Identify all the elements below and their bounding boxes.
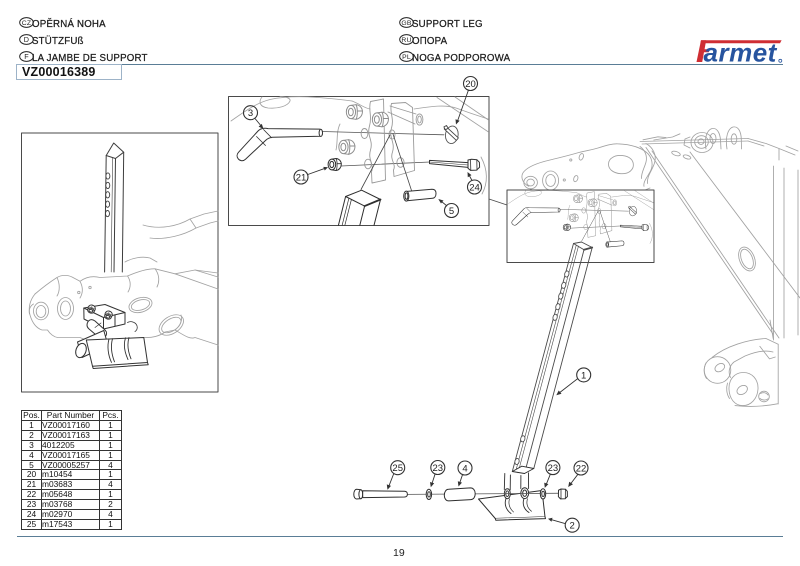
svg-text:23: 23 [433,463,444,474]
svg-text:22: 22 [576,464,587,475]
svg-text:2: 2 [570,521,575,532]
svg-text:25: 25 [392,463,403,474]
svg-text:20: 20 [465,79,476,90]
svg-text:1: 1 [581,370,586,381]
svg-text:24: 24 [469,183,480,194]
svg-text:21: 21 [296,173,307,184]
svg-text:3: 3 [248,108,253,119]
svg-text:4: 4 [462,464,467,475]
svg-text:23: 23 [548,463,559,474]
svg-text:5: 5 [449,206,454,217]
